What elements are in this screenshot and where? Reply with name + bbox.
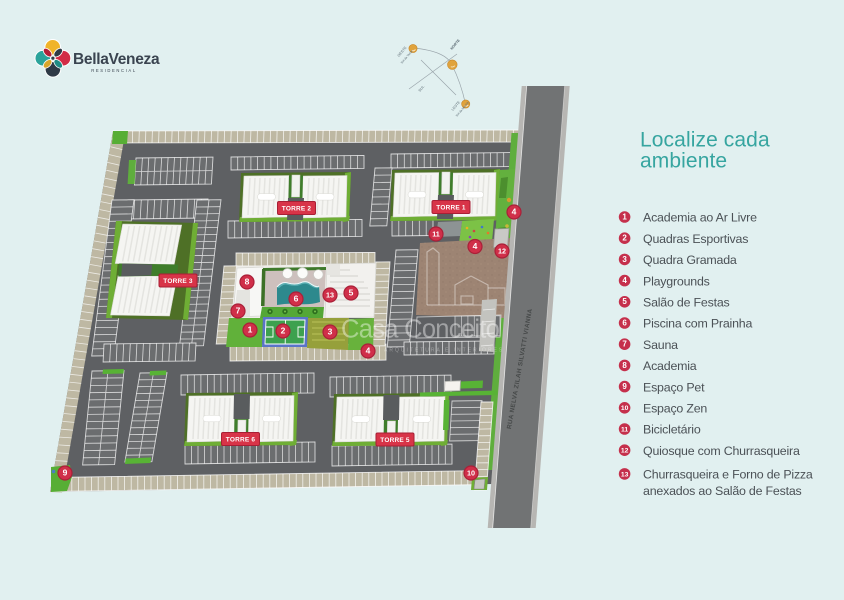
svg-text:3: 3 [328, 327, 333, 337]
svg-text:5: 5 [349, 288, 354, 298]
svg-text:10: 10 [621, 405, 629, 412]
svg-text:9: 9 [622, 382, 627, 391]
svg-text:Academia ao Ar Livre: Academia ao Ar Livre [643, 211, 757, 225]
svg-text:Churrasqueira e Forno de Pizza: Churrasqueira e Forno de Pizza [643, 468, 813, 482]
svg-text:Quadra Gramada: Quadra Gramada [643, 253, 737, 267]
svg-text:13: 13 [326, 291, 334, 300]
svg-text:TORRE 6: TORRE 6 [226, 437, 256, 444]
svg-text:Quiosque com Churrasqueira: Quiosque com Churrasqueira [643, 444, 800, 458]
svg-text:Piscina com Prainha: Piscina com Prainha [643, 317, 752, 331]
svg-text:8: 8 [622, 361, 627, 370]
svg-text:3: 3 [622, 255, 627, 264]
svg-text:4: 4 [622, 276, 627, 285]
svg-text:7: 7 [236, 306, 241, 316]
svg-text:2: 2 [622, 234, 627, 243]
svg-text:BellaVeneza: BellaVeneza [73, 51, 160, 68]
svg-text:anexados ao Salão de Festas: anexados ao Salão de Festas [643, 484, 802, 498]
svg-text:10: 10 [467, 469, 475, 478]
svg-text:Localize cada: Localize cada [640, 129, 770, 152]
svg-text:Bicicletário: Bicicletário [643, 423, 701, 437]
svg-text:RESIDENCIAL: RESIDENCIAL [91, 68, 137, 73]
svg-text:2: 2 [281, 326, 286, 336]
svg-text:Salão de Festas: Salão de Festas [643, 296, 730, 310]
svg-text:Academia: Academia [643, 359, 697, 373]
svg-text:4: 4 [366, 346, 371, 356]
svg-text:TORRE 3: TORRE 3 [163, 278, 193, 285]
svg-text:1: 1 [622, 212, 627, 221]
svg-text:11: 11 [432, 230, 440, 239]
svg-text:12: 12 [621, 448, 629, 455]
svg-text:Sauna: Sauna [643, 338, 678, 352]
svg-text:6: 6 [622, 318, 627, 327]
svg-text:TORRE 5: TORRE 5 [380, 437, 410, 444]
svg-text:Quadras Esportivas: Quadras Esportivas [643, 232, 748, 246]
svg-text:Espaço Pet: Espaço Pet [643, 380, 705, 394]
svg-text:ambiente: ambiente [640, 150, 727, 173]
svg-text:13: 13 [621, 471, 629, 478]
svg-text:TORRE 1: TORRE 1 [436, 205, 466, 212]
svg-text:1: 1 [248, 325, 253, 335]
svg-text:TORRE 2: TORRE 2 [282, 206, 312, 213]
svg-text:7: 7 [622, 340, 627, 349]
svg-text:6: 6 [294, 294, 299, 304]
svg-text:5: 5 [622, 297, 627, 306]
svg-text:Casa Conceito: Casa Conceito [341, 316, 500, 344]
svg-text:Playgrounds: Playgrounds [643, 274, 710, 288]
svg-text:ARQUITETURA E INTERIORES: ARQUITETURA E INTERIORES [384, 348, 504, 354]
svg-text:Espaço Zen: Espaço Zen [643, 402, 707, 416]
svg-text:4: 4 [473, 241, 478, 251]
svg-text:9: 9 [63, 468, 68, 478]
svg-text:12: 12 [498, 247, 506, 256]
svg-text:4: 4 [512, 207, 517, 217]
svg-text:8: 8 [245, 277, 250, 287]
svg-text:11: 11 [621, 426, 628, 433]
